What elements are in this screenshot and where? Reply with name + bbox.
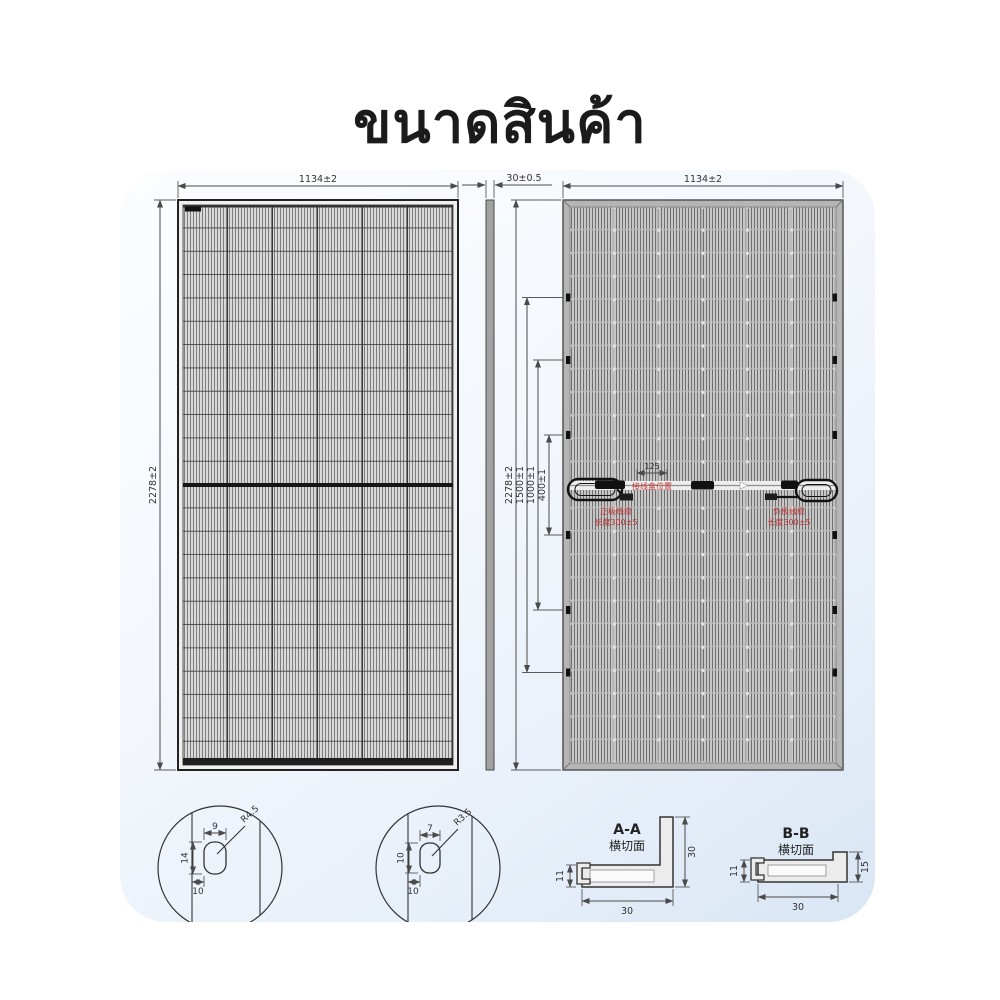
side-profile-bar [486, 200, 494, 770]
section-bb-base-dim: 30 [792, 902, 804, 913]
section-aa: A-A 横切面 30 30 11 [555, 817, 698, 917]
jbox-width-dim-label: 125 [644, 462, 659, 471]
mounting-slot-shape-a [204, 842, 226, 874]
detail-a-height-label: 14 [181, 852, 191, 864]
detail-a-radius-label: R4.5 [239, 804, 261, 825]
section-bb-lip-dim: 11 [729, 865, 740, 877]
back-mount-dim-400-label: 400±1 [537, 469, 548, 501]
back-mount-dim-1000-label: 1000±1 [526, 466, 537, 504]
back-width-dim-label: 1134±2 [684, 174, 722, 185]
section-aa-title: A-A [613, 822, 641, 838]
section-aa-lip-dim: 11 [555, 870, 566, 882]
back-mount-dim-1500-label: 1500±1 [515, 466, 526, 504]
left-cable-note-line1: 正极线缆 [600, 506, 632, 516]
technical-drawing-canvas: 1134±2 2278±2 30±0.5 1134±2 2278± [120, 170, 875, 922]
back-view-drawing: 1134±2 2278±2 1500±1 1000±1 400±1 [504, 174, 843, 770]
section-aa-wall-dim: 30 [687, 846, 698, 858]
detail-circle-a: R4.5 9 14 10 [158, 804, 282, 922]
section-bb-subtitle: 横切面 [778, 843, 814, 857]
detail-a-width-label: 9 [212, 822, 218, 832]
detail-b-radius-label: R3.5 [452, 807, 474, 828]
page-title: ขนาดสินค้า [0, 78, 1000, 167]
front-top-strip [183, 205, 453, 208]
jbox-note-label: 接线盒位置 [632, 481, 672, 491]
detail-b-offset-label: 10 [407, 887, 419, 897]
detail-a-offset-label: 10 [192, 887, 204, 897]
left-cable-note-line2: 长度300±5 [594, 517, 637, 527]
front-view-drawing: 1134±2 2278±2 [148, 174, 458, 770]
product-dimensions-card: 1134±2 2278±2 30±0.5 1134±2 2278± [120, 170, 875, 922]
detail-b-height-label: 10 [397, 852, 407, 864]
section-bb-wall-dim: 15 [860, 861, 871, 873]
front-width-dim-label: 1134±2 [299, 174, 337, 185]
front-label-sticker [185, 207, 201, 212]
mounting-slot-shape-b [420, 843, 440, 873]
section-aa-subtitle: 横切面 [609, 839, 645, 853]
detail-b-width-label: 7 [427, 824, 433, 834]
section-bb-title: B-B [782, 826, 809, 842]
center-connector [691, 481, 714, 490]
left-sub-box [620, 494, 633, 501]
right-cable-note-line1: 负极线缆 [773, 506, 805, 516]
side-thickness-dim-label: 30±0.5 [506, 173, 541, 184]
left-connector [595, 481, 625, 490]
section-bb: B-B 横切面 15 30 11 [729, 826, 871, 913]
front-height-dim-label: 2278±2 [148, 466, 159, 504]
back-height-dim-label: 2278±2 [504, 466, 515, 504]
right-cable-note-line2: 长度300±5 [767, 517, 810, 527]
right-cable-end [765, 494, 777, 501]
section-aa-base-dim: 30 [621, 906, 633, 917]
detail-circle-b: R3.5 7 10 10 [376, 806, 500, 922]
front-bottom-strip [183, 758, 453, 765]
